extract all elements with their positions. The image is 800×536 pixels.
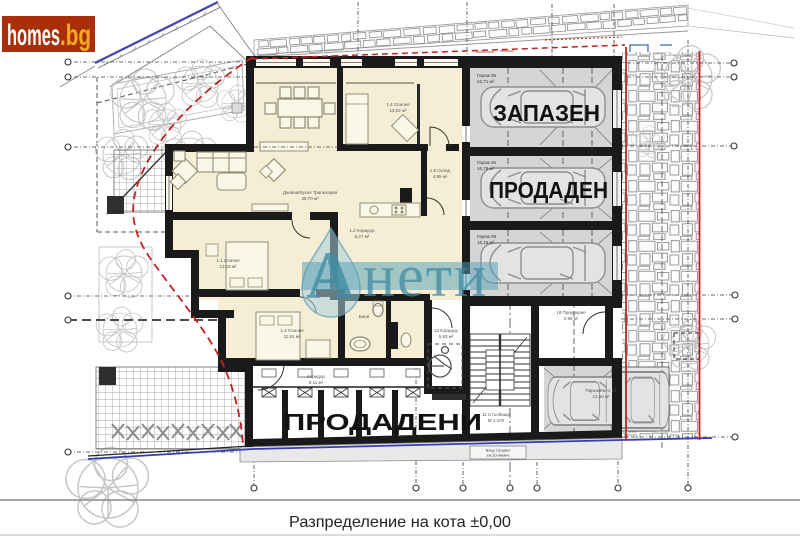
svg-text:ЗАПАЗЕН: ЗАПАЗЕН bbox=[493, 100, 600, 126]
svg-text:1.5 Склад: 1.5 Склад bbox=[430, 168, 451, 173]
svg-text:Гараж 09: Гараж 09 bbox=[477, 234, 496, 239]
svg-text:13 Коридор: 13 Коридор bbox=[434, 328, 459, 333]
svg-text:1.1 Спалня: 1.1 Спалня bbox=[216, 258, 240, 263]
svg-text:8,11 м²: 8,11 м² bbox=[309, 380, 324, 385]
svg-text:13,02 м²: 13,02 м² bbox=[389, 108, 407, 113]
svg-text:16,76 м²: 16,76 м² bbox=[477, 166, 495, 171]
svg-text:2,98 м²: 2,98 м² bbox=[564, 316, 579, 321]
svg-text:homes: homes bbox=[7, 19, 60, 52]
svg-text:Паркомясто 17: Паркомясто 17 bbox=[585, 388, 617, 393]
svg-text:М 1:100: М 1:100 bbox=[488, 418, 505, 423]
svg-text:5,63 м²: 5,63 м² bbox=[439, 334, 454, 339]
svg-text:ПРОДАДЕН: ПРОДАДЕН bbox=[489, 177, 608, 203]
svg-text:13,15 м²: 13,15 м² bbox=[219, 264, 237, 269]
svg-text:ПРОДАДЕНИ: ПРОДАДЕНИ bbox=[283, 409, 482, 435]
svg-text:38,70 м²: 38,70 м² bbox=[301, 196, 319, 201]
svg-text:18 Предверие: 18 Предверие bbox=[556, 310, 586, 315]
svg-text:застрояване: застрояване bbox=[486, 453, 510, 458]
svg-text:нети: нети bbox=[363, 243, 488, 309]
svg-text:А: А bbox=[306, 237, 355, 313]
svg-text:Коридор: Коридор bbox=[307, 374, 325, 379]
svg-text:11 Стълбище: 11 Стълбище bbox=[482, 412, 510, 417]
svg-text:1.2 Коридор: 1.2 Коридор bbox=[349, 228, 375, 233]
svg-text:Гараж 06: Гараж 06 bbox=[477, 160, 496, 165]
svg-text:Разпределение на кота ±0,00: Разпределение на кота ±0,00 bbox=[289, 514, 511, 531]
svg-text:Дневна/Кухня Трапезария: Дневна/Кухня Трапезария bbox=[283, 190, 338, 195]
svg-text:22,71 м²: 22,71 м² bbox=[477, 79, 495, 84]
svg-text:4,95 м²: 4,95 м² bbox=[433, 174, 448, 179]
svg-text:Баня: Баня bbox=[359, 314, 370, 319]
svg-text:Гараж 05: Гараж 05 bbox=[477, 73, 496, 78]
svg-text:11,81 м²: 11,81 м² bbox=[284, 334, 301, 339]
svg-text:1.2 Спалня: 1.2 Спалня bbox=[280, 328, 304, 333]
svg-text:6,27 м²: 6,27 м² bbox=[355, 234, 370, 239]
svg-text:12,50 м²: 12,50 м² bbox=[592, 394, 610, 399]
svg-text:.bg: .bg bbox=[60, 19, 91, 52]
svg-text:1.4 Спалня: 1.4 Спалня bbox=[386, 102, 410, 107]
